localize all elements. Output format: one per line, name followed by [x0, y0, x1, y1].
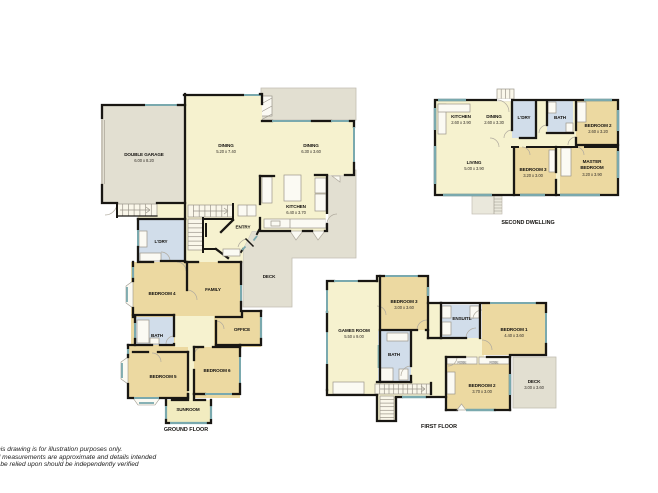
svg-text:5.00 x 3.90: 5.00 x 3.90 [464, 166, 484, 171]
svg-text:BEDROOM 2: BEDROOM 2 [469, 383, 496, 388]
svg-text:FAMILY: FAMILY [205, 287, 221, 292]
svg-text:6.30 x 3.60: 6.30 x 3.60 [301, 149, 321, 154]
svg-text:DECK: DECK [263, 274, 276, 279]
svg-text:BATH: BATH [151, 333, 164, 338]
svg-text:3.20 x 3.00: 3.20 x 3.00 [523, 173, 543, 178]
svg-text:BEDROOM 3: BEDROOM 3 [520, 167, 547, 172]
svg-text:3.00 x 3.60: 3.00 x 3.60 [524, 385, 544, 390]
svg-text:GROUND FLOOR: GROUND FLOOR [164, 427, 208, 433]
svg-text:DECK: DECK [528, 379, 541, 384]
svg-text:2.60 x 3.30: 2.60 x 3.30 [484, 120, 504, 125]
svg-text:6.40 x 3.70: 6.40 x 3.70 [286, 210, 306, 215]
svg-text:FIRST FLOOR: FIRST FLOOR [421, 424, 457, 430]
svg-text:3.20 x 3.90: 3.20 x 3.90 [582, 172, 602, 177]
svg-text:BEDROOM 2: BEDROOM 2 [585, 123, 612, 128]
svg-text:LIVING: LIVING [467, 160, 482, 165]
svg-text:MASTER: MASTER [583, 159, 603, 164]
svg-text:BEDROOM 3: BEDROOM 3 [391, 299, 418, 304]
svg-text:2.60 x 3.90: 2.60 x 3.90 [451, 120, 471, 125]
svg-text:BEDROOM: BEDROOM [580, 165, 604, 170]
svg-text:L'DRY: L'DRY [155, 239, 168, 244]
svg-text:3.70 x 3.00: 3.70 x 3.00 [472, 389, 492, 394]
svg-text:KITCHEN: KITCHEN [451, 114, 471, 119]
svg-text:ROBE: ROBE [489, 361, 498, 365]
svg-text:ROBE: ROBE [457, 361, 466, 365]
svg-text:L'DRY: L'DRY [518, 115, 531, 120]
svg-text:BEDROOM 4: BEDROOM 4 [149, 291, 176, 296]
svg-text:ENSUITE: ENSUITE [452, 316, 471, 321]
svg-text:BEDROOM 5: BEDROOM 5 [150, 374, 177, 379]
svg-text:SECOND DWELLING: SECOND DWELLING [501, 220, 554, 226]
svg-text:5.50 x 9.00: 5.50 x 9.00 [344, 334, 364, 339]
svg-text:3.00 x 3.60: 3.00 x 3.60 [394, 305, 414, 310]
svg-text:BATH: BATH [388, 352, 401, 357]
svg-text:DOUBLE GARAGE: DOUBLE GARAGE [124, 152, 164, 157]
svg-text:BEDROOM 6: BEDROOM 6 [204, 368, 231, 373]
svg-text:DINING: DINING [218, 143, 234, 148]
svg-text:6.00 x 8.20: 6.00 x 8.20 [134, 158, 154, 163]
svg-text:BEDROOM 1: BEDROOM 1 [501, 327, 528, 332]
svg-text:ENTRY: ENTRY [236, 225, 251, 230]
svg-text:SUNROOM: SUNROOM [176, 407, 200, 412]
svg-text:2.60 x 3.20: 2.60 x 3.20 [588, 129, 608, 134]
svg-text:KITCHEN: KITCHEN [286, 204, 306, 209]
svg-text:GAMES ROOM: GAMES ROOM [338, 328, 370, 333]
svg-text:DINING: DINING [486, 114, 502, 119]
svg-text:4.40 x 3.60: 4.40 x 3.60 [504, 333, 524, 338]
svg-text:5.20 x 7.40: 5.20 x 7.40 [216, 149, 236, 154]
svg-text:DINING: DINING [303, 143, 319, 148]
svg-text:OFFICE: OFFICE [234, 327, 250, 332]
svg-text:BATH: BATH [554, 115, 567, 120]
